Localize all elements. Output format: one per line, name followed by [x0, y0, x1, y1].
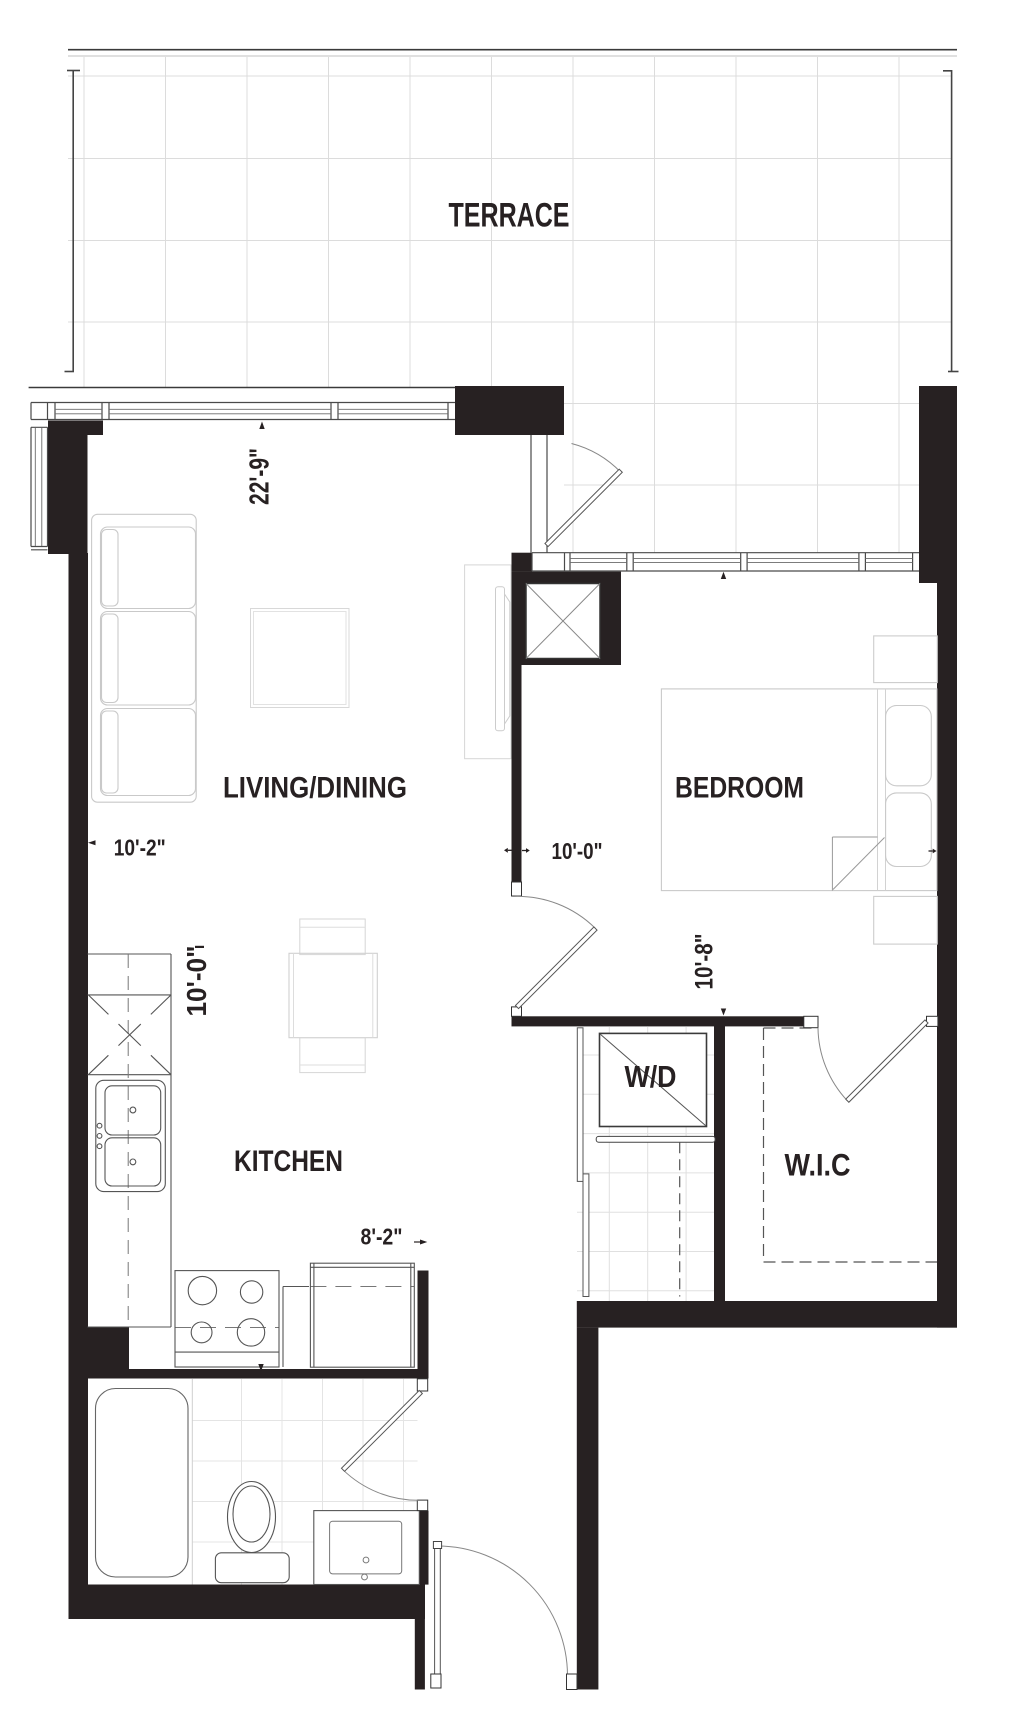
- svg-text:10'-8": 10'-8": [691, 934, 719, 990]
- svg-text:22'-9": 22'-9": [244, 448, 275, 505]
- svg-text:W.I.C: W.I.C: [785, 1147, 851, 1183]
- svg-text:LIVING/DINING: LIVING/DINING: [223, 771, 407, 804]
- svg-text:10'-0": 10'-0": [181, 946, 212, 1017]
- svg-text:10'-0": 10'-0": [552, 838, 603, 864]
- svg-text:8'-2": 8'-2": [361, 1223, 403, 1249]
- svg-text:BEDROOM: BEDROOM: [675, 771, 804, 804]
- svg-text:KITCHEN: KITCHEN: [234, 1145, 343, 1178]
- svg-text:10'-2": 10'-2": [114, 834, 166, 860]
- svg-text:W/D: W/D: [625, 1059, 677, 1094]
- svg-text:TERRACE: TERRACE: [449, 196, 570, 234]
